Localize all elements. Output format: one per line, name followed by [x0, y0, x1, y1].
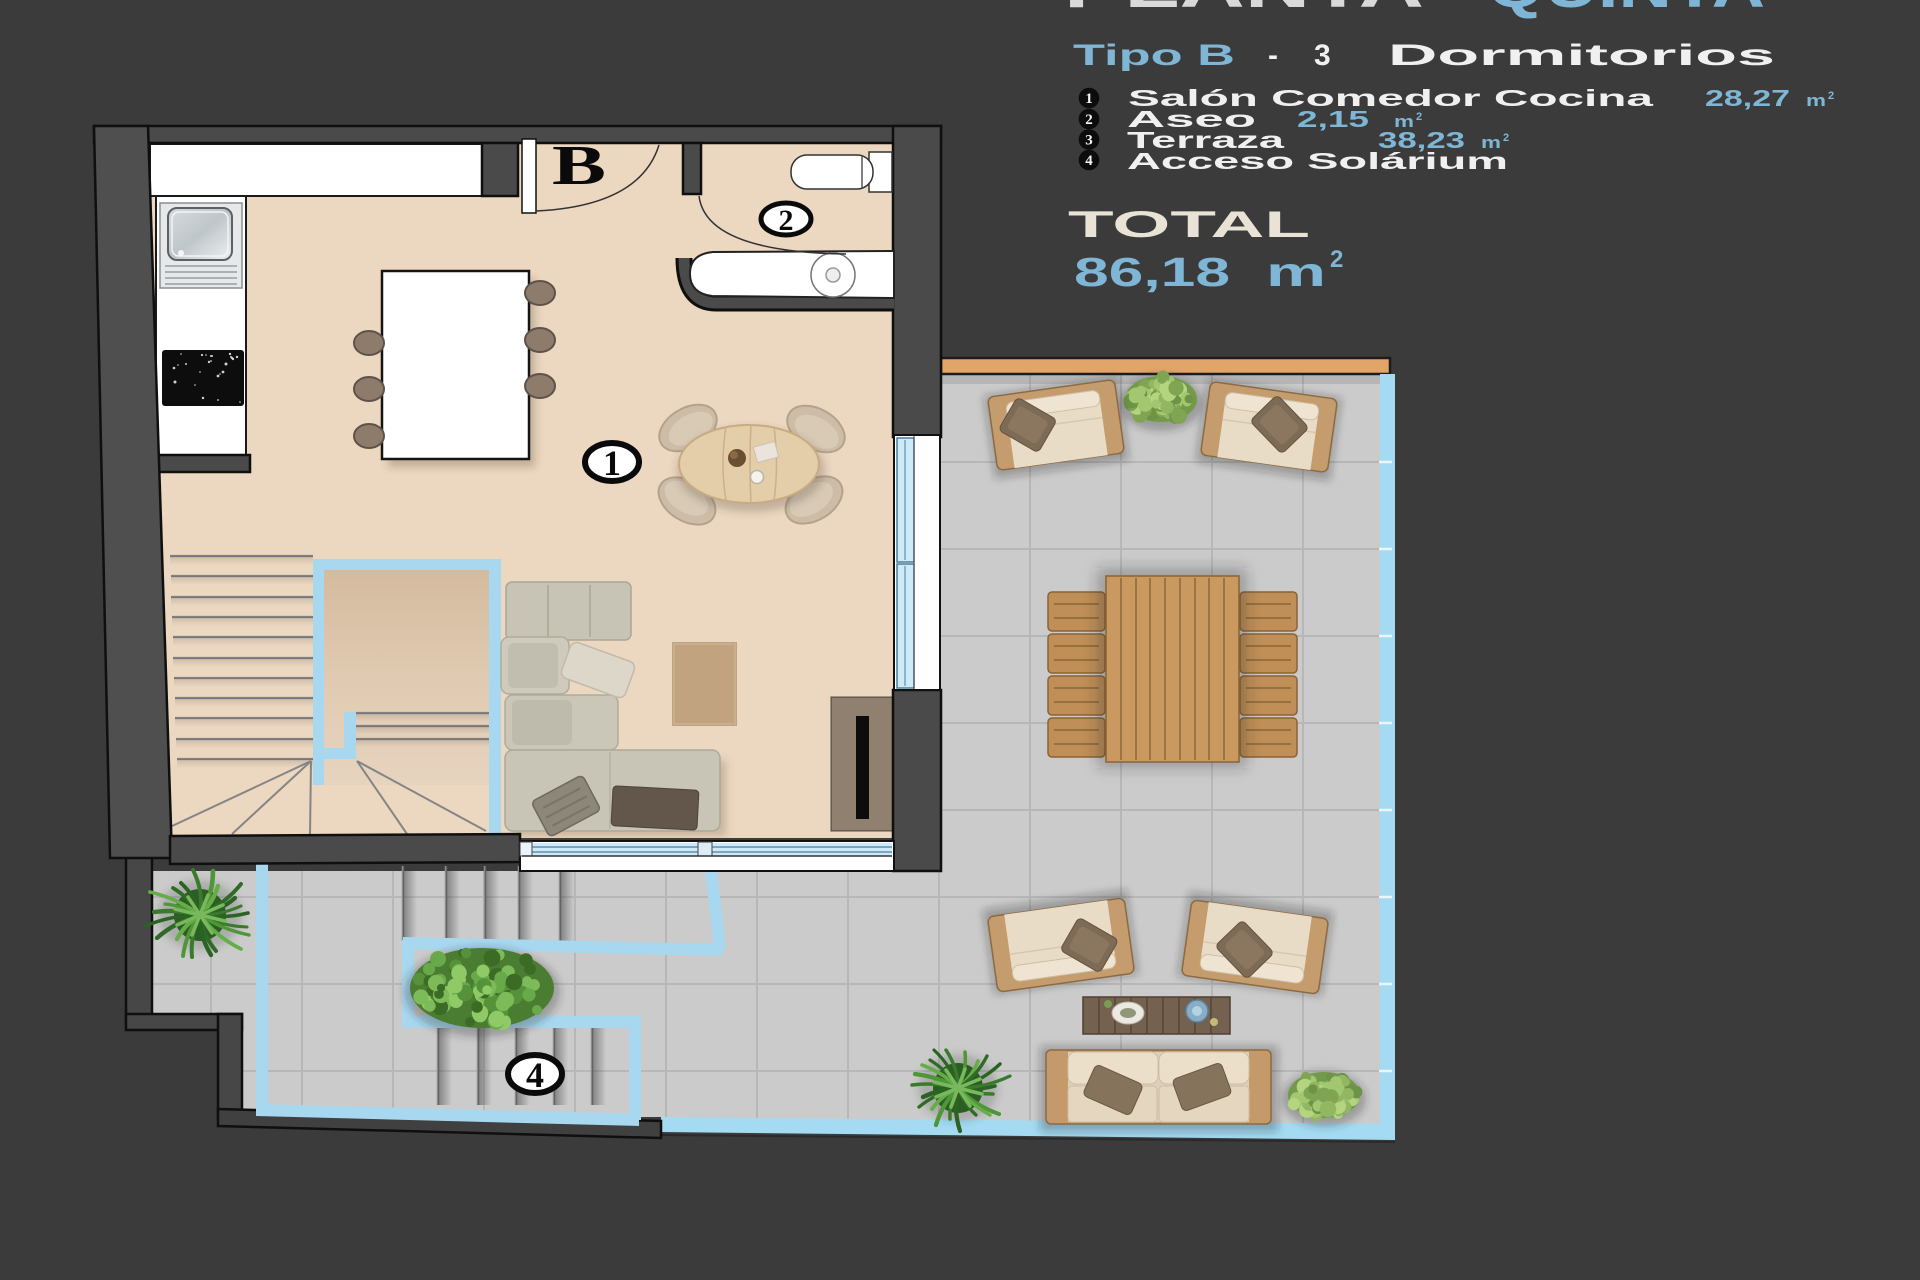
svg-text:2: 2 [1085, 112, 1093, 128]
svg-text:QUINTA: QUINTA [1487, 0, 1765, 20]
svg-text:2,15: 2,15 [1297, 106, 1369, 132]
svg-text:TOTAL: TOTAL [1068, 204, 1310, 245]
svg-text:-: - [1268, 39, 1278, 72]
svg-text:PLANTA: PLANTA [1064, 0, 1424, 20]
svg-text:2: 2 [779, 204, 794, 237]
svg-text:2: 2 [1416, 111, 1422, 123]
svg-text:4: 4 [1085, 153, 1093, 169]
svg-text:1: 1 [603, 443, 621, 483]
svg-text:3: 3 [1314, 39, 1331, 72]
svg-text:28,27: 28,27 [1705, 85, 1790, 111]
svg-text:m: m [1266, 249, 1326, 295]
svg-text:86,18: 86,18 [1074, 249, 1230, 295]
svg-text:Dormitorios: Dormitorios [1388, 39, 1775, 72]
svg-text:2: 2 [1828, 90, 1834, 102]
svg-text:3: 3 [1085, 133, 1093, 149]
svg-text:1: 1 [1085, 91, 1093, 107]
svg-text:2: 2 [1503, 132, 1509, 144]
svg-text:4: 4 [526, 1055, 544, 1095]
svg-text:2: 2 [1330, 246, 1343, 273]
svg-text:Acceso Solárium: Acceso Solárium [1127, 148, 1508, 174]
svg-text:m: m [1806, 91, 1826, 110]
svg-text:B: B [552, 135, 606, 197]
svg-text:Tipo B: Tipo B [1073, 39, 1235, 72]
